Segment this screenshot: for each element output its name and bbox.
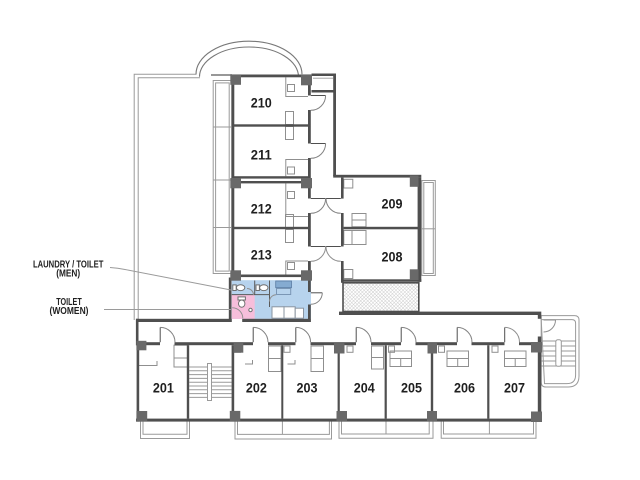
svg-text:201: 201 xyxy=(153,380,174,396)
svg-text:213: 213 xyxy=(251,247,272,263)
svg-text:(MEN): (MEN) xyxy=(56,268,80,280)
svg-text:204: 204 xyxy=(354,380,375,396)
svg-text:209: 209 xyxy=(382,196,403,212)
svg-text:203: 203 xyxy=(297,380,318,396)
svg-text:210: 210 xyxy=(251,95,272,111)
svg-text:207: 207 xyxy=(504,380,525,396)
svg-text:205: 205 xyxy=(401,380,422,396)
svg-text:202: 202 xyxy=(246,380,267,396)
svg-text:208: 208 xyxy=(382,249,403,265)
svg-text:(WOMEN): (WOMEN) xyxy=(50,305,89,317)
svg-text:211: 211 xyxy=(251,147,272,163)
svg-text:212: 212 xyxy=(251,201,272,217)
svg-text:206: 206 xyxy=(454,380,475,396)
